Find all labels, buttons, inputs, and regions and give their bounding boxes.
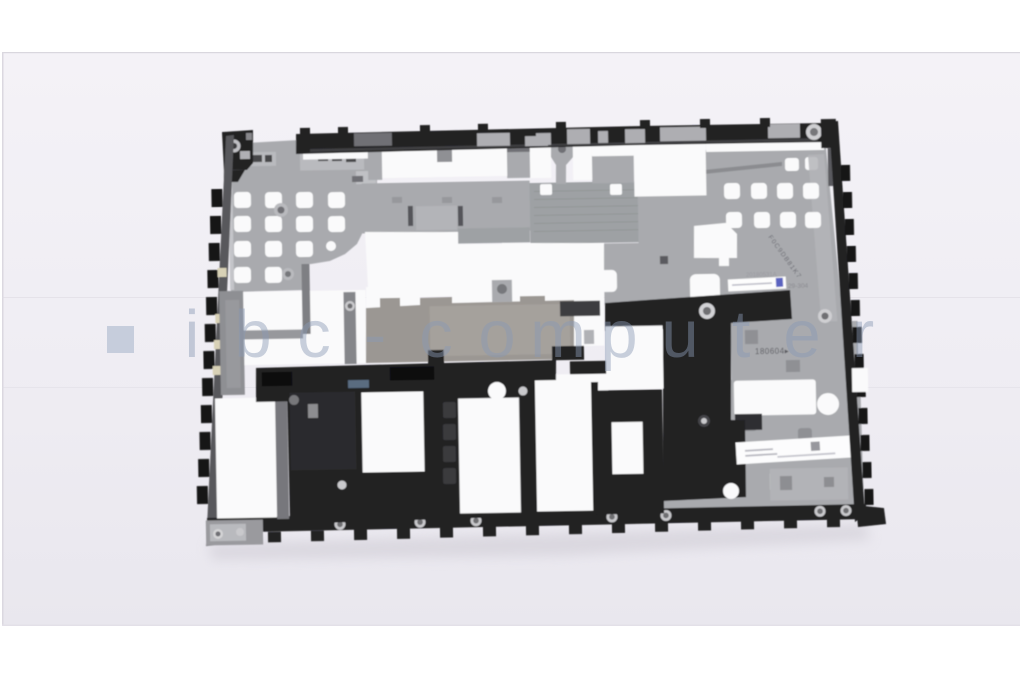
svg-text:e: e <box>783 297 820 372</box>
svg-text:t: t <box>732 297 751 372</box>
svg-text:20180531A: 20180531A <box>746 272 777 279</box>
svg-text:r: r <box>852 297 874 372</box>
svg-text:c: c <box>419 297 453 372</box>
svg-text:c: c <box>297 297 331 372</box>
svg-text:-: - <box>364 297 386 372</box>
svg-text:29-304: 29-304 <box>788 283 809 290</box>
svg-text:o: o <box>478 297 515 372</box>
svg-text:u: u <box>661 297 698 372</box>
svg-text:b: b <box>234 297 271 372</box>
svg-text:p: p <box>600 297 637 372</box>
svg-text:i: i <box>185 297 200 372</box>
svg-text:m: m <box>530 297 586 372</box>
